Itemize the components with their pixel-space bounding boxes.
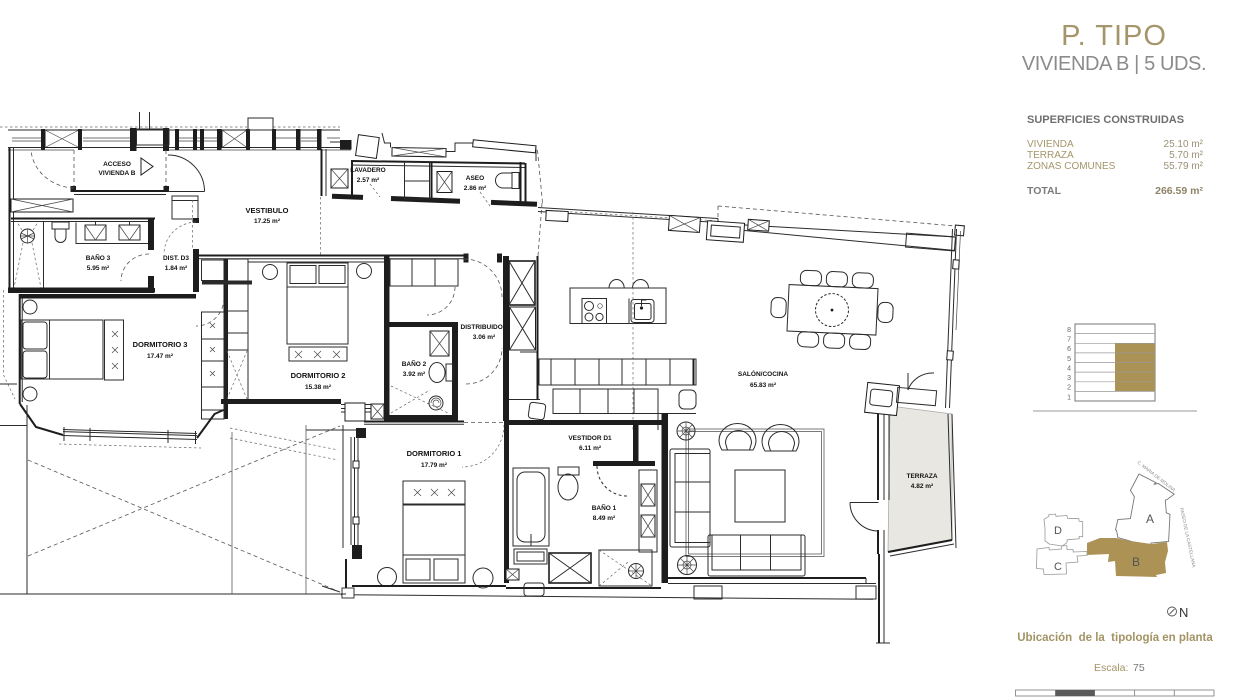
svg-text:DORMITORIO 3: DORMITORIO 3 bbox=[133, 340, 188, 349]
svg-text:17.47 m²: 17.47 m² bbox=[147, 353, 174, 360]
svg-text:DIST. D3: DIST. D3 bbox=[163, 255, 189, 262]
svg-text:LAVADERO: LAVADERO bbox=[350, 167, 386, 174]
svg-text:BAÑO 1: BAÑO 1 bbox=[592, 503, 617, 512]
svg-text:PASEO DE LA CASTELLANA: PASEO DE LA CASTELLANA bbox=[1179, 507, 1197, 569]
svg-text:2: 2 bbox=[1067, 385, 1071, 392]
svg-text:D: D bbox=[1054, 525, 1062, 537]
svg-text:25.10 m²: 25.10 m² bbox=[1164, 139, 1204, 150]
svg-text:3.06 m²: 3.06 m² bbox=[473, 334, 496, 341]
svg-text:B: B bbox=[1132, 555, 1140, 569]
svg-text:DORMITORIO 1: DORMITORIO 1 bbox=[407, 449, 462, 458]
svg-text:Ubicación de la tipología en: Ubicación de la tipología en planta bbox=[1017, 632, 1213, 644]
svg-text:5: 5 bbox=[1067, 356, 1071, 363]
svg-text:6.11 m²: 6.11 m² bbox=[579, 445, 602, 452]
svg-text:17.25 m²: 17.25 m² bbox=[254, 218, 281, 225]
svg-text:3.92 m²: 3.92 m² bbox=[403, 371, 426, 378]
svg-text:4.82 m²: 4.82 m² bbox=[911, 483, 934, 490]
svg-text:BAÑO 2: BAÑO 2 bbox=[402, 359, 427, 368]
svg-text:7: 7 bbox=[1067, 337, 1071, 344]
svg-text:1: 1 bbox=[1067, 394, 1071, 401]
svg-text:BAÑO 3: BAÑO 3 bbox=[86, 253, 111, 262]
svg-text:TOTAL: TOTAL bbox=[1027, 185, 1062, 197]
svg-text:1.84 m²: 1.84 m² bbox=[165, 265, 188, 272]
svg-text:3: 3 bbox=[1067, 375, 1071, 382]
svg-text:ASEO: ASEO bbox=[466, 175, 484, 182]
svg-text:ZONAS COMUNES: ZONAS COMUNES bbox=[1027, 161, 1116, 172]
svg-text:DISTRIBUIDOR: DISTRIBUIDOR bbox=[461, 324, 508, 331]
svg-text:Escala:: Escala: bbox=[1094, 662, 1128, 674]
svg-text:VIVIENDA B | 5 UDS.: VIVIENDA B | 5 UDS. bbox=[1022, 53, 1206, 75]
svg-text:5.95 m²: 5.95 m² bbox=[87, 265, 110, 272]
svg-text:VIVIENDA: VIVIENDA bbox=[1027, 139, 1074, 150]
svg-text:P. TIPO: P. TIPO bbox=[1061, 20, 1167, 52]
svg-text:VESTIBULO: VESTIBULO bbox=[246, 206, 289, 215]
svg-text:TERRAZA: TERRAZA bbox=[906, 473, 937, 480]
svg-text:65.83 m²: 65.83 m² bbox=[750, 382, 777, 389]
svg-text:DORMITORIO 2: DORMITORIO 2 bbox=[291, 371, 346, 380]
svg-text:VESTIDOR D1: VESTIDOR D1 bbox=[568, 435, 612, 442]
svg-text:15.38 m²: 15.38 m² bbox=[305, 384, 332, 391]
svg-text:6: 6 bbox=[1067, 346, 1071, 353]
svg-text:17.79 m²: 17.79 m² bbox=[421, 462, 448, 469]
svg-text:SALÓN/COCINA: SALÓN/COCINA bbox=[738, 369, 789, 378]
svg-text:4: 4 bbox=[1067, 365, 1071, 372]
svg-text:266.59 m²: 266.59 m² bbox=[1155, 185, 1203, 197]
svg-text:VIVIENDA B: VIVIENDA B bbox=[99, 170, 136, 177]
svg-text:C: C bbox=[1054, 561, 1062, 573]
svg-text:SUPERFICIES CONSTRUIDAS: SUPERFICIES CONSTRUIDAS bbox=[1027, 114, 1184, 126]
svg-text:TERRAZA: TERRAZA bbox=[1027, 150, 1074, 161]
svg-text:5.70 m²: 5.70 m² bbox=[1169, 150, 1204, 161]
svg-text:8.49 m²: 8.49 m² bbox=[593, 515, 616, 522]
svg-text:2.57 m²: 2.57 m² bbox=[357, 177, 380, 184]
svg-text:75: 75 bbox=[1133, 662, 1145, 674]
svg-text:55.79 m²: 55.79 m² bbox=[1164, 161, 1204, 172]
svg-text:2.86 m²: 2.86 m² bbox=[464, 185, 487, 192]
svg-text:N: N bbox=[1179, 605, 1188, 620]
svg-text:A: A bbox=[1146, 512, 1154, 526]
svg-text:ACCESO: ACCESO bbox=[103, 161, 131, 168]
svg-text:8: 8 bbox=[1067, 327, 1071, 334]
